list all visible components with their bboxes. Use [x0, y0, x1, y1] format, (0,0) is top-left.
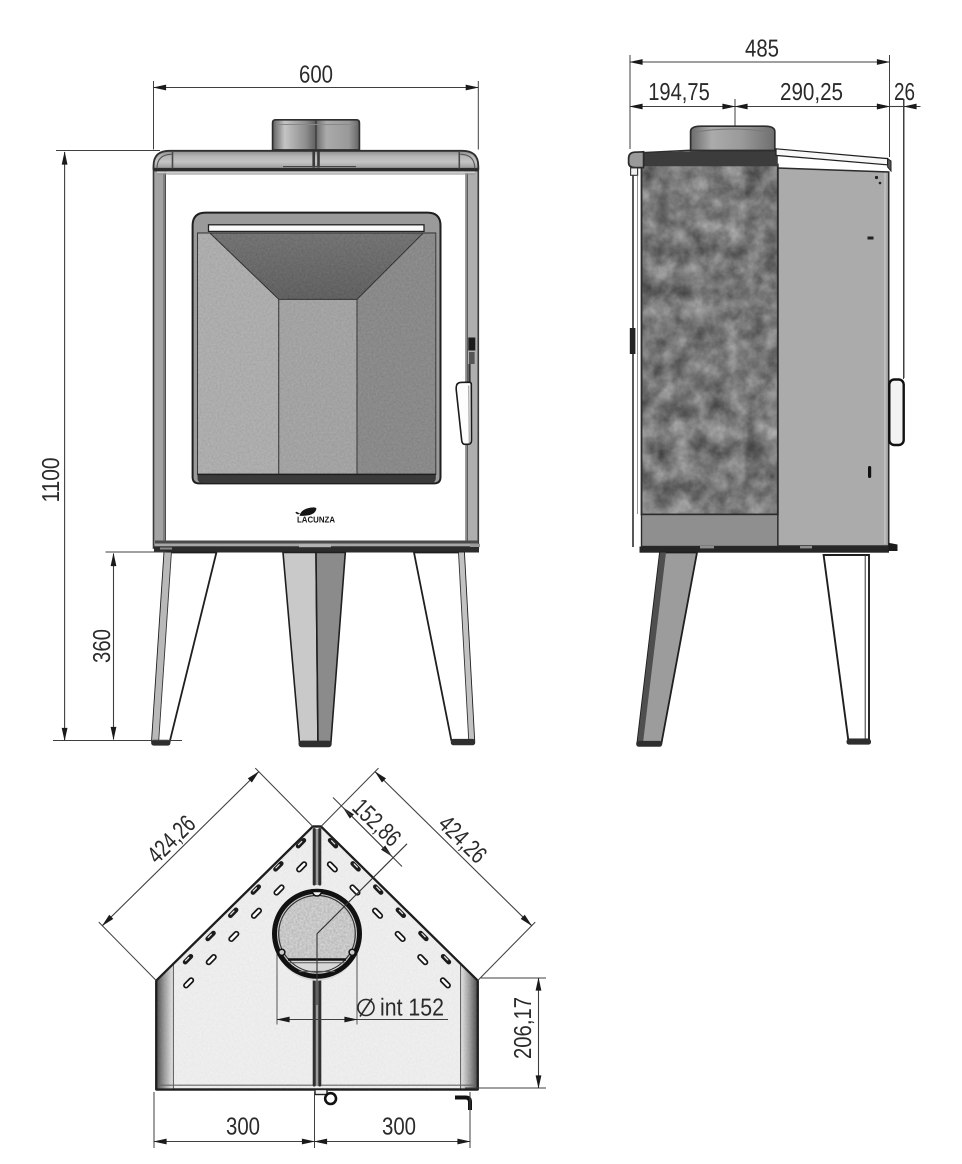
svg-text:int 152: int 152	[380, 995, 444, 1022]
svg-text:LACUNZA: LACUNZA	[297, 515, 335, 525]
svg-text:194,75: 194,75	[648, 79, 710, 106]
svg-text:1100: 1100	[38, 458, 65, 503]
svg-text:206,17: 206,17	[510, 997, 537, 1059]
svg-text:300: 300	[382, 1114, 416, 1141]
svg-text:300: 300	[226, 1114, 260, 1141]
svg-text:600: 600	[299, 62, 333, 89]
svg-text:360: 360	[89, 629, 116, 663]
svg-text:26: 26	[894, 79, 915, 106]
svg-text:290,25: 290,25	[780, 79, 843, 106]
svg-text:485: 485	[745, 36, 779, 63]
